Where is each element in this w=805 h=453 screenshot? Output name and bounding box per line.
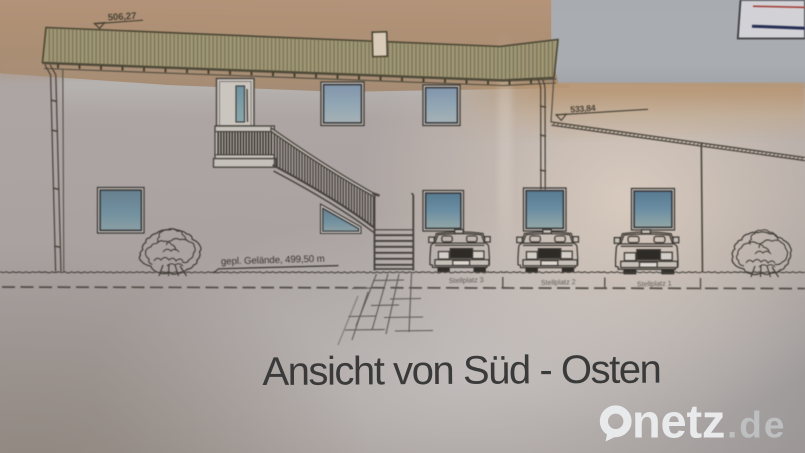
svg-text:netz: netz (632, 400, 725, 448)
svg-text:.de: .de (727, 405, 786, 446)
svg-text:Ansicht von Süd - Osten: Ansicht von Süd - Osten (262, 348, 660, 394)
